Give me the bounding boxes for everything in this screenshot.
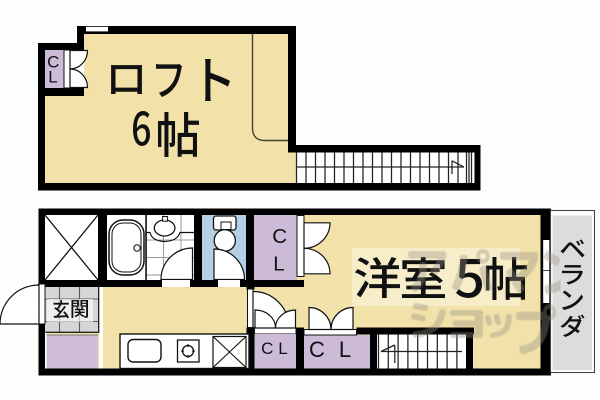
svg-text:C: C xyxy=(309,337,325,362)
svg-text:C: C xyxy=(272,225,287,248)
svg-text:L: L xyxy=(339,337,351,362)
svg-text:L: L xyxy=(273,252,284,275)
svg-text:L: L xyxy=(278,339,287,358)
svg-text:L: L xyxy=(48,67,57,86)
svg-text:C: C xyxy=(261,339,273,358)
